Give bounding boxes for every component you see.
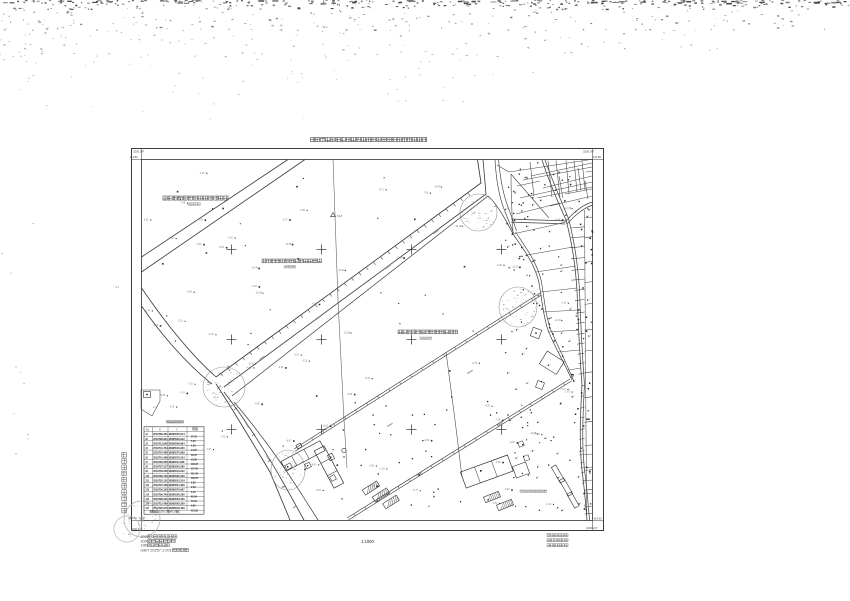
svg-text:-7.69: -7.69 — [534, 434, 540, 436]
svg-text:38395570.989: 38395570.989 — [169, 452, 186, 455]
svg-text:-9.25: -9.25 — [196, 244, 202, 246]
svg-text:-1.30: -1.30 — [379, 468, 385, 470]
svg-text:414.80: 414.80 — [593, 155, 602, 159]
svg-text:7.09: 7.09 — [191, 441, 196, 443]
svg-text:-10.42: -10.42 — [434, 186, 441, 188]
svg-text:-6.25: -6.25 — [278, 367, 284, 369]
svg-text:-5.39: -5.39 — [198, 219, 204, 221]
svg-text:-3.53: -3.53 — [302, 361, 308, 363]
svg-text:GB/T 20257.1-2017: GB/T 20257.1-2017 — [141, 548, 174, 552]
svg-text:2519798.961: 2519798.961 — [153, 438, 168, 441]
svg-text:2519750.303: 2519750.303 — [153, 489, 168, 492]
svg-text:111.42: 111.42 — [191, 472, 198, 475]
svg-text:-8.71: -8.71 — [379, 189, 385, 191]
svg-text:414.80: 414.80 — [130, 155, 139, 159]
svg-text:-2.15: -2.15 — [178, 321, 184, 323]
svg-text:38395563.269: 38395563.269 — [169, 503, 186, 506]
svg-text:-7.94: -7.94 — [423, 193, 429, 195]
svg-text:2519789.732: 2519789.732 — [153, 475, 168, 478]
svg-text:Y: Y — [176, 428, 178, 432]
svg-text:1.92: 1.92 — [191, 483, 196, 485]
svg-text:1:1000: 1:1000 — [361, 539, 374, 544]
svg-text:-7.81: -7.81 — [492, 503, 498, 505]
svg-text:414.50: 414.50 — [594, 517, 603, 521]
svg-text:100.67: 100.67 — [191, 464, 199, 466]
svg-text:38395536.286: 38395536.286 — [169, 493, 186, 496]
svg-text:2519713.960: 2519713.960 — [153, 443, 168, 446]
svg-text:-7.97: -7.97 — [206, 449, 212, 451]
svg-text:-8.43: -8.43 — [316, 490, 322, 492]
svg-text:-10.56: -10.56 — [285, 244, 292, 246]
svg-text:2519726.101: 2519726.101 — [153, 479, 168, 482]
svg-text:-11.92: -11.92 — [248, 363, 255, 365]
svg-text:2519783.355: 2519783.355 — [153, 461, 168, 464]
svg-text:-11.86: -11.86 — [343, 333, 350, 335]
svg-text:117.05: 117.05 — [191, 469, 199, 471]
svg-text:-4.15: -4.15 — [312, 304, 318, 306]
svg-text:3236.247: 3236.247 — [583, 150, 595, 154]
svg-text:14.37: 14.37 — [191, 449, 197, 452]
svg-text:-2.17: -2.17 — [282, 219, 288, 221]
svg-text:-9.77: -9.77 — [508, 506, 514, 508]
svg-text:-6.25: -6.25 — [199, 173, 205, 175]
svg-text:45.39: 45.39 — [171, 511, 178, 514]
svg-text:-8.80: -8.80 — [219, 247, 225, 249]
svg-text:-4.40: -4.40 — [254, 404, 260, 406]
svg-text:-7.18: -7.18 — [495, 420, 501, 422]
svg-text:2519724.480: 2519724.480 — [153, 452, 168, 455]
svg-text:-3.19: -3.19 — [561, 303, 567, 305]
svg-text:2.48: 2.48 — [191, 486, 196, 489]
svg-text:2519741.489: 2519741.489 — [153, 456, 168, 459]
svg-text:38395545.286: 38395545.286 — [169, 466, 186, 469]
svg-text:3236.247: 3236.247 — [586, 526, 598, 530]
svg-text:1.46: 1.46 — [191, 491, 196, 494]
svg-text:-8.63: -8.63 — [311, 464, 317, 466]
svg-text:-6.85: -6.85 — [369, 485, 375, 487]
svg-text:2519741.764: 2519741.764 — [153, 447, 168, 450]
svg-text:38395555.914: 38395555.914 — [169, 433, 186, 436]
svg-text:-0.47: -0.47 — [561, 389, 567, 391]
svg-text:-4.96: -4.96 — [424, 440, 430, 442]
svg-text:2519759.263: 2519759.263 — [153, 470, 168, 473]
svg-text:-10.40: -10.40 — [338, 270, 345, 272]
svg-text:-0.48: -0.48 — [300, 210, 306, 212]
svg-text:113.95: 113.95 — [191, 510, 199, 512]
svg-text:-8.77: -8.77 — [413, 490, 419, 492]
svg-text:2519737.269: 2519737.269 — [153, 484, 168, 487]
svg-text:2.85: 2.85 — [191, 506, 196, 508]
svg-text:38395593.642: 38395593.642 — [169, 438, 186, 441]
svg-text:-11.93: -11.93 — [554, 320, 561, 322]
svg-text:-6.96: -6.96 — [347, 394, 353, 396]
svg-text:-5.10: -5.10 — [294, 355, 300, 357]
svg-text:2024: 2024 — [141, 535, 149, 539]
svg-text:45.76: 45.76 — [191, 454, 197, 457]
svg-text:57.35: 57.35 — [191, 436, 197, 438]
svg-text:61.8: 61.8 — [337, 214, 343, 218]
svg-text:-4.25: -4.25 — [485, 406, 491, 408]
svg-text:-0.98: -0.98 — [496, 265, 502, 267]
svg-text:30259.39: 30259.39 — [158, 511, 169, 514]
svg-text:-0.42: -0.42 — [555, 219, 561, 221]
svg-text:-8.97: -8.97 — [510, 442, 516, 444]
svg-text:1985: 1985 — [141, 544, 149, 548]
svg-text:3236.247: 3236.247 — [133, 150, 145, 154]
svg-text:2519798.301: 2519798.301 — [153, 498, 168, 501]
svg-text:-0.33: -0.33 — [504, 489, 510, 491]
svg-text:-7.10: -7.10 — [188, 384, 194, 386]
svg-text:38395569.894: 38395569.894 — [169, 443, 186, 446]
svg-text:-8.67: -8.67 — [286, 440, 292, 442]
svg-text:-1.43: -1.43 — [153, 325, 159, 327]
svg-text:-10.46: -10.46 — [251, 268, 258, 270]
svg-text:-2.63: -2.63 — [565, 392, 571, 394]
svg-text:2519737.517: 2519737.517 — [153, 466, 168, 469]
svg-text:X: X — [159, 428, 161, 432]
svg-text:38395531.396: 38395531.396 — [169, 484, 186, 487]
svg-text:3236.247: 3236.247 — [131, 527, 143, 531]
svg-text:-7.33: -7.33 — [173, 199, 179, 201]
svg-text:102.07: 102.07 — [191, 478, 199, 480]
svg-text:38395516.260: 38395516.260 — [169, 447, 186, 450]
svg-text:65.34: 65.34 — [191, 495, 197, 498]
svg-text:38395559.405: 38395559.405 — [169, 498, 186, 501]
svg-text:-6.19: -6.19 — [546, 504, 552, 506]
svg-text:-1.70: -1.70 — [220, 436, 226, 438]
svg-text:-8.93: -8.93 — [187, 292, 193, 294]
svg-text:71.81: 71.81 — [191, 501, 197, 503]
svg-text:38395519.242: 38395519.242 — [169, 470, 186, 473]
svg-text:2519789.361: 2519789.361 — [153, 433, 168, 436]
svg-text:-4.90: -4.90 — [495, 462, 501, 464]
svg-text:-0.52: -0.52 — [143, 219, 149, 221]
svg-text:-5.16: -5.16 — [365, 378, 371, 380]
svg-text:2519796.740: 2519796.740 — [153, 493, 168, 496]
svg-text:-4.65: -4.65 — [246, 367, 252, 369]
svg-text:38395566.229: 38395566.229 — [169, 475, 186, 478]
svg-text:13.36: 13.36 — [191, 459, 197, 461]
svg-text:38395510.314: 38395510.314 — [169, 479, 186, 482]
svg-text:-5.21: -5.21 — [208, 334, 214, 336]
svg-text:-8.68: -8.68 — [160, 395, 166, 397]
svg-text:-2.69: -2.69 — [369, 466, 375, 468]
svg-text:1.09: 1.09 — [191, 446, 196, 448]
svg-text:2519712.469: 2519712.469 — [153, 503, 168, 506]
svg-text:-10.38: -10.38 — [565, 208, 572, 210]
svg-text:-12.22: -12.22 — [512, 267, 519, 269]
svg-text:-10.84: -10.84 — [255, 293, 262, 295]
svg-text:-10.75: -10.75 — [455, 226, 462, 228]
svg-text:-0.4: -0.4 — [115, 286, 120, 289]
svg-text:38395579.204: 38395579.204 — [169, 456, 186, 459]
svg-text:-1.28: -1.28 — [252, 286, 258, 288]
svg-text:-6.74: -6.74 — [145, 310, 151, 312]
svg-text:-2.78: -2.78 — [169, 407, 175, 409]
svg-text:-2.52: -2.52 — [228, 238, 234, 240]
svg-text:-8.61: -8.61 — [323, 425, 329, 427]
svg-text:-5.76: -5.76 — [472, 363, 478, 365]
svg-text:-8.43: -8.43 — [169, 238, 175, 240]
svg-text:38395579.997: 38395579.997 — [169, 489, 186, 492]
svg-text:-10.93: -10.93 — [396, 257, 403, 259]
svg-text:-7.47: -7.47 — [180, 393, 186, 395]
svg-text:38395511.848: 38395511.848 — [169, 461, 185, 464]
svg-text:-7.29: -7.29 — [180, 203, 186, 205]
